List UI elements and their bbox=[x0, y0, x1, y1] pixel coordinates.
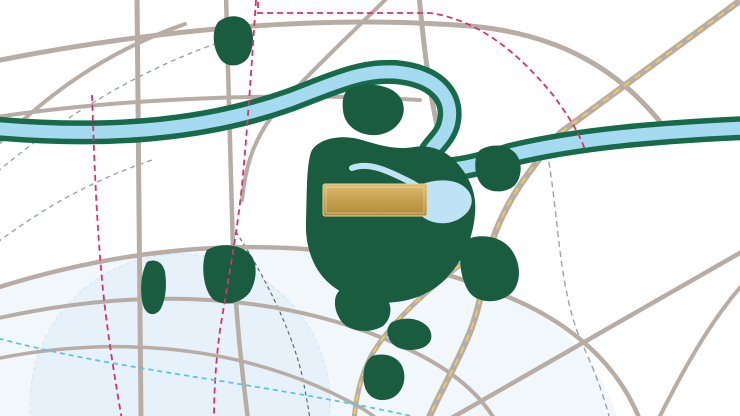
park-beihu bbox=[363, 354, 404, 400]
park-baoguang-guihu bbox=[214, 16, 253, 65]
park-nibatuo bbox=[343, 85, 404, 135]
location-map[interactable] bbox=[0, 0, 740, 416]
map-canvas bbox=[0, 0, 740, 416]
background-washes bbox=[0, 249, 618, 416]
park-wulongshan-forest bbox=[475, 145, 520, 191]
park-mulanshan bbox=[460, 236, 519, 301]
project-badge bbox=[323, 184, 427, 216]
